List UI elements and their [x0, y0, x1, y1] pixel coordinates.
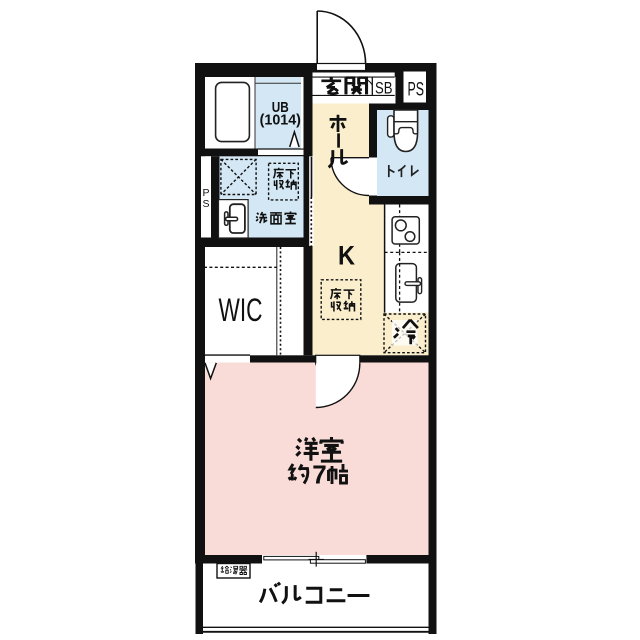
- svg-text:K: K: [338, 241, 355, 271]
- svg-text:PS: PS: [408, 78, 425, 100]
- svg-text:(1014): (1014): [260, 112, 301, 129]
- svg-text:S: S: [202, 198, 209, 210]
- svg-text:WIC: WIC: [219, 292, 263, 328]
- svg-text:SB: SB: [375, 79, 393, 97]
- svg-text:7: 7: [312, 460, 326, 490]
